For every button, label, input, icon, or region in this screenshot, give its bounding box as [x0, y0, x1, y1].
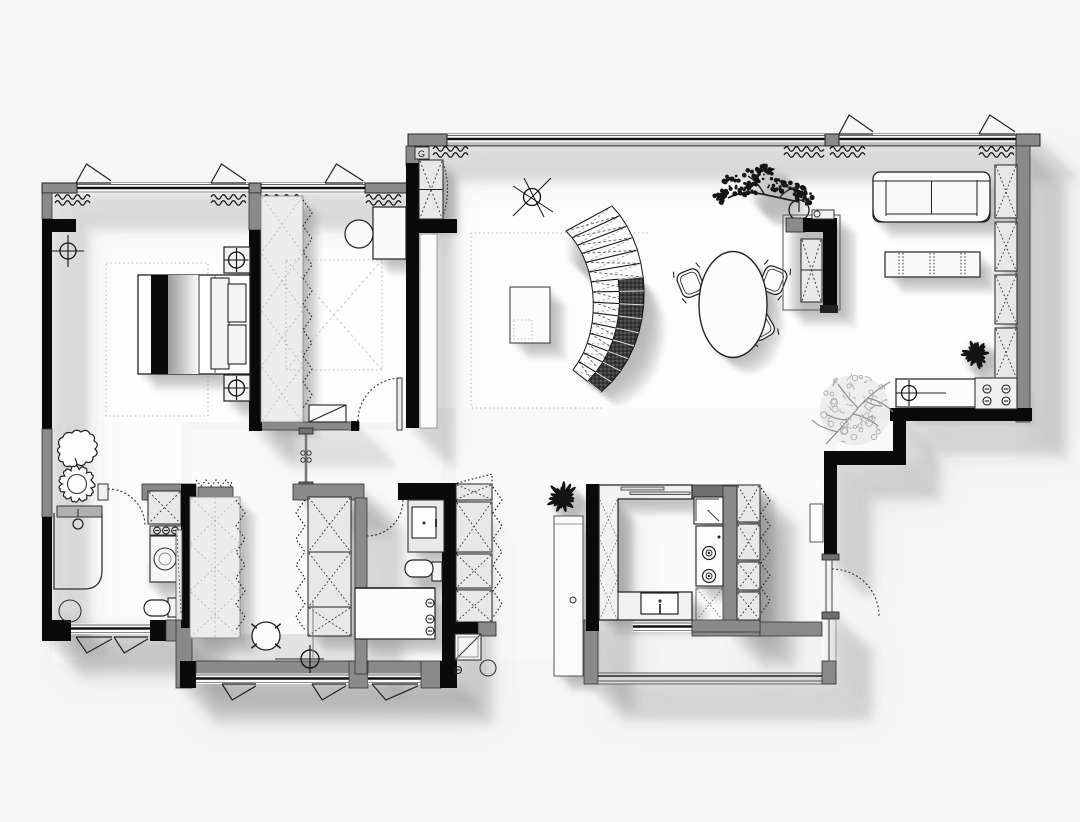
svg-text:G: G: [418, 149, 425, 159]
